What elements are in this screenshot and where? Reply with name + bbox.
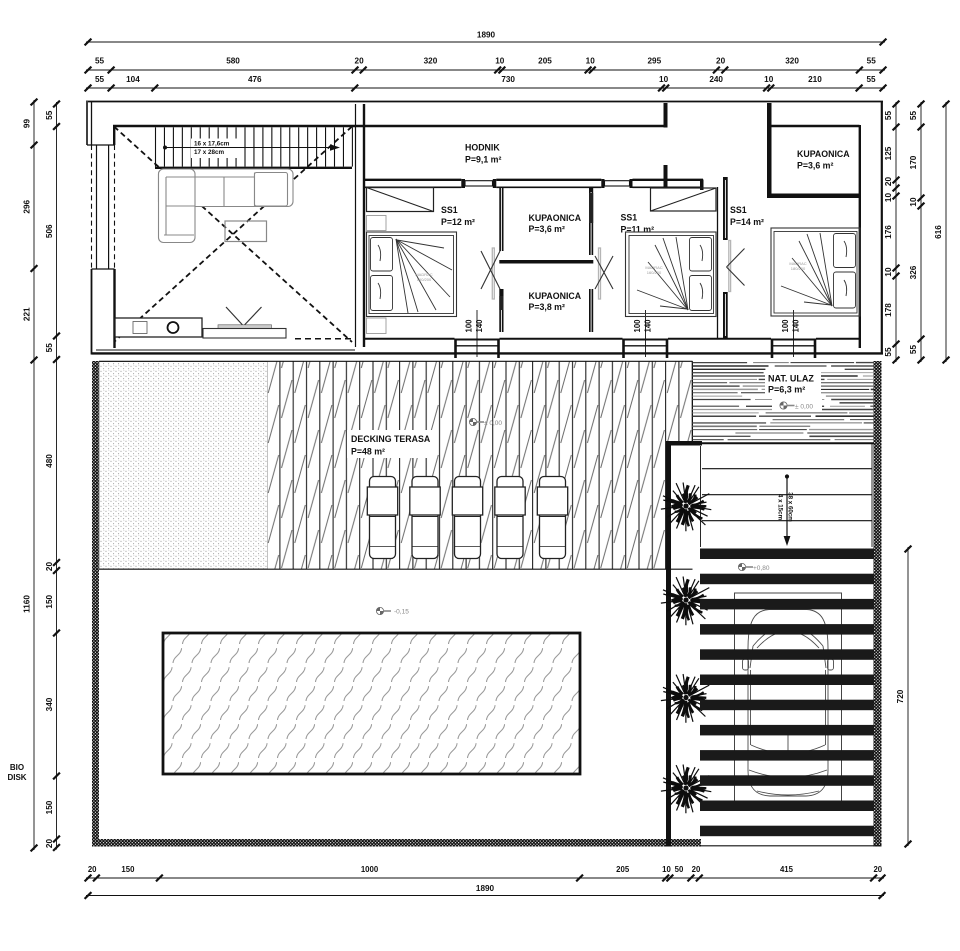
svg-text:104: 104 [126, 75, 140, 84]
svg-text:BIO: BIO [10, 763, 24, 772]
svg-text:10: 10 [586, 57, 596, 66]
svg-text:415: 415 [780, 865, 794, 874]
svg-text:P=3,6 m²: P=3,6 m² [529, 224, 565, 234]
svg-text:P=3,6 m²: P=3,6 m² [797, 161, 833, 171]
svg-text:205: 205 [538, 57, 552, 66]
svg-text:16 x 17,6cm: 16 x 17,6cm [194, 141, 230, 148]
svg-text:55: 55 [95, 75, 105, 84]
svg-text:140: 140 [475, 319, 484, 333]
svg-text:SS1: SS1 [441, 205, 458, 215]
svg-text:55: 55 [884, 347, 893, 357]
svg-text:170: 170 [909, 155, 918, 169]
svg-text:20: 20 [45, 839, 54, 849]
svg-text:730: 730 [501, 75, 515, 84]
svg-text:100: 100 [465, 319, 474, 333]
svg-text:P=12 m²: P=12 m² [441, 217, 475, 227]
svg-text:DISK: DISK [7, 773, 26, 782]
svg-text:20: 20 [873, 865, 882, 874]
svg-text:340: 340 [45, 697, 54, 711]
svg-text:10: 10 [495, 57, 505, 66]
svg-text:SS1: SS1 [730, 205, 747, 215]
svg-text:+0,80: +0,80 [753, 565, 770, 572]
svg-text:150: 150 [45, 800, 54, 814]
svg-text:20: 20 [355, 57, 365, 66]
svg-text:320: 320 [785, 57, 799, 66]
svg-text:320: 320 [424, 57, 438, 66]
svg-text:20: 20 [88, 865, 97, 874]
svg-text:1160: 1160 [23, 595, 32, 613]
svg-text:180/200: 180/200 [791, 266, 806, 271]
svg-text:± 0,00: ± 0,00 [484, 420, 502, 427]
svg-text:50: 50 [675, 865, 684, 874]
svg-text:± 0,00: ± 0,00 [795, 404, 813, 411]
svg-text:125: 125 [884, 146, 893, 160]
svg-text:17 x 28cm: 17 x 28cm [194, 149, 225, 156]
svg-text:55: 55 [867, 57, 877, 66]
svg-text:-0,15: -0,15 [394, 609, 409, 616]
svg-text:P=14 m²: P=14 m² [730, 217, 764, 227]
svg-text:55: 55 [95, 57, 105, 66]
svg-text:20: 20 [45, 562, 54, 572]
svg-text:1000: 1000 [361, 865, 379, 874]
svg-text:10: 10 [764, 75, 774, 84]
svg-text:221: 221 [23, 307, 32, 321]
svg-text:150: 150 [121, 865, 135, 874]
svg-text:580: 580 [226, 57, 240, 66]
svg-text:616: 616 [934, 225, 943, 239]
svg-text:480: 480 [45, 454, 54, 468]
svg-text:205: 205 [616, 865, 630, 874]
svg-text:10: 10 [884, 267, 893, 277]
svg-text:178: 178 [884, 303, 893, 317]
svg-text:HODNIK: HODNIK [465, 143, 500, 153]
svg-text:55: 55 [909, 345, 918, 355]
svg-text:P=3,8 m²: P=3,8 m² [529, 302, 565, 312]
svg-text:55: 55 [45, 343, 54, 353]
svg-text:38 x 60cm: 38 x 60cm [787, 492, 794, 522]
svg-text:720: 720 [896, 689, 905, 703]
svg-text:KUPAONICA: KUPAONICA [797, 149, 850, 159]
svg-text:100: 100 [633, 319, 642, 333]
svg-text:P=6,3 m²: P=6,3 m² [768, 385, 805, 395]
svg-text:10: 10 [884, 193, 893, 203]
svg-text:20: 20 [884, 177, 893, 187]
svg-text:296: 296 [23, 199, 32, 213]
svg-text:KUPAONICA: KUPAONICA [529, 213, 582, 223]
svg-text:476: 476 [248, 75, 262, 84]
svg-text:1890: 1890 [477, 31, 496, 40]
svg-text:176: 176 [884, 225, 893, 239]
svg-text:4 x 15cm: 4 x 15cm [777, 494, 784, 521]
svg-text:NAT. ULAZ: NAT. ULAZ [768, 374, 814, 384]
svg-text:99: 99 [23, 119, 32, 129]
svg-text:140: 140 [643, 319, 652, 333]
svg-text:DECKING TERASA: DECKING TERASA [351, 434, 431, 444]
svg-text:KUPAONICA: KUPAONICA [529, 291, 582, 301]
svg-text:240: 240 [709, 75, 723, 84]
svg-text:10: 10 [662, 865, 671, 874]
svg-text:160/200: 160/200 [417, 277, 432, 282]
svg-text:55: 55 [884, 111, 893, 121]
svg-text:140: 140 [791, 319, 800, 333]
svg-text:10: 10 [909, 197, 918, 207]
svg-text:55: 55 [45, 110, 54, 120]
svg-text:55: 55 [866, 75, 876, 84]
svg-text:100: 100 [781, 319, 790, 333]
svg-text:55: 55 [909, 111, 918, 121]
svg-text:P=48 m²: P=48 m² [351, 447, 385, 457]
svg-text:P=9,1 m²: P=9,1 m² [465, 155, 501, 165]
svg-text:150: 150 [45, 594, 54, 608]
svg-text:20: 20 [692, 865, 701, 874]
svg-text:SS1: SS1 [621, 213, 638, 223]
svg-text:506: 506 [45, 224, 54, 238]
svg-text:160/200: 160/200 [647, 270, 662, 275]
svg-text:210: 210 [808, 75, 822, 84]
svg-text:20: 20 [716, 57, 726, 66]
svg-text:1890: 1890 [476, 884, 495, 893]
svg-text:295: 295 [648, 57, 662, 66]
svg-text:10: 10 [659, 75, 669, 84]
svg-text:326: 326 [909, 265, 918, 279]
